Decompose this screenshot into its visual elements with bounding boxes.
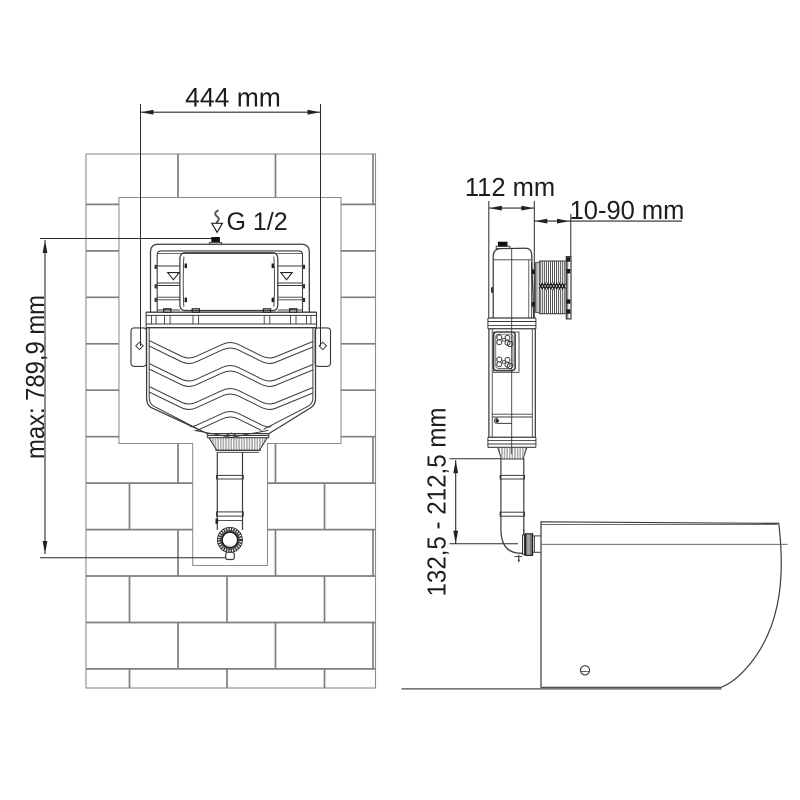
svg-text:10-90 mm: 10-90 mm	[570, 197, 685, 225]
svg-text:max: 789,9 mm: max: 789,9 mm	[20, 295, 50, 459]
svg-text:112 mm: 112 mm	[465, 174, 555, 202]
svg-text:G 1/2: G 1/2	[227, 208, 288, 236]
svg-text:132,5 - 212,5 mm: 132,5 - 212,5 mm	[423, 408, 451, 597]
svg-text:444 mm: 444 mm	[185, 83, 281, 113]
